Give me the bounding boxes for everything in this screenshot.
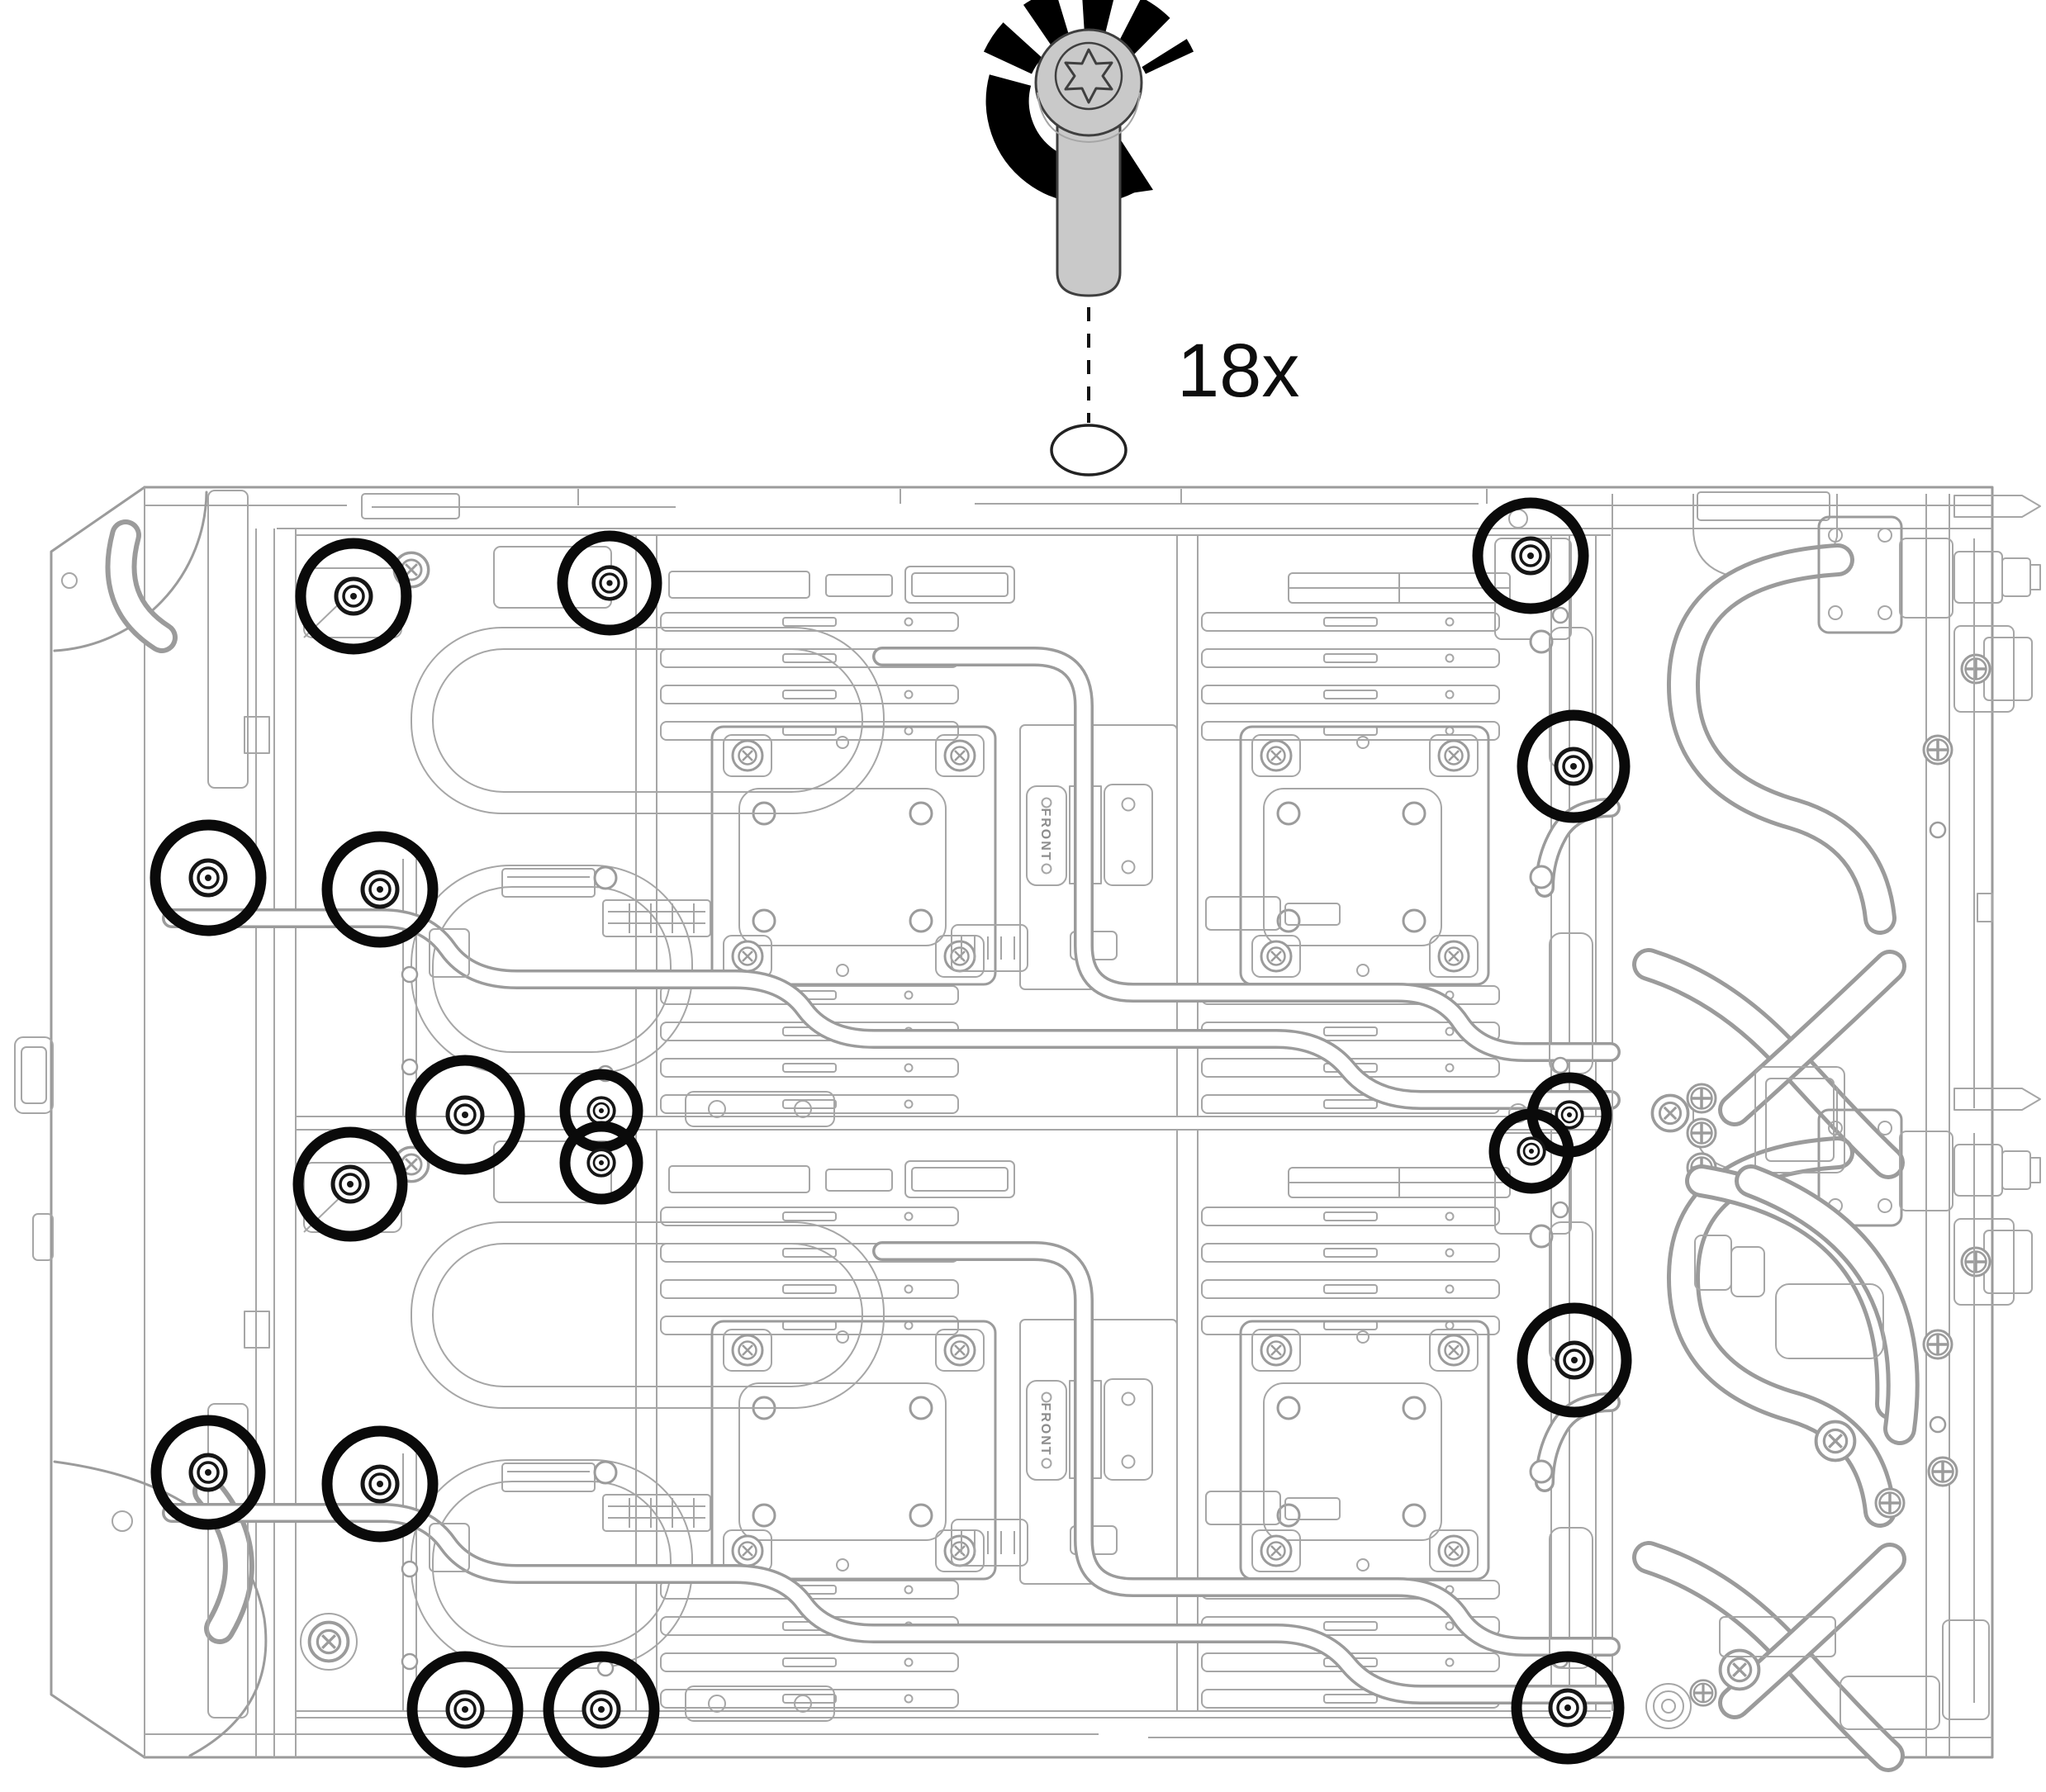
front-label-top: FRONT bbox=[1038, 808, 1052, 861]
screw-head-icon bbox=[333, 1167, 368, 1202]
screw-head-icon bbox=[584, 1692, 619, 1727]
torx-screw-rotation-icon bbox=[1008, 11, 1170, 475]
screw-head-icon bbox=[1556, 749, 1591, 784]
diagram-canvas: FRONT FRONT 18x bbox=[0, 0, 2046, 1792]
screw-head-icon bbox=[588, 1150, 615, 1176]
hose-top bbox=[1649, 494, 2040, 1163]
screw-count-label: 18x bbox=[1177, 329, 1299, 413]
screw-head-icon bbox=[1557, 1343, 1592, 1377]
screw-hole-ellipse bbox=[1051, 425, 1126, 475]
front-label-bottom: FRONT bbox=[1038, 1402, 1052, 1456]
screw-head-icon bbox=[594, 567, 626, 600]
left-latch-handles bbox=[55, 491, 357, 1756]
screw-head-icon bbox=[588, 1097, 615, 1124]
screw-head-icon bbox=[363, 872, 397, 907]
screw-head-icon bbox=[363, 1467, 397, 1501]
node-board-bottom bbox=[172, 1088, 1612, 1721]
screw-head-icon bbox=[1550, 1690, 1585, 1725]
screw-shaft bbox=[1057, 124, 1120, 296]
node-board-top bbox=[172, 494, 1612, 1126]
front-labels: FRONT FRONT bbox=[1038, 808, 1052, 1456]
screw-head-icon bbox=[1513, 538, 1548, 573]
screw-head-icon bbox=[191, 860, 225, 895]
screw-head-icon bbox=[448, 1097, 482, 1132]
screw-head-icon bbox=[1518, 1138, 1545, 1164]
screw-head-icon bbox=[448, 1692, 482, 1727]
screw-head-icon bbox=[336, 579, 371, 614]
screw-head-icon bbox=[191, 1455, 225, 1490]
screw-location-circles bbox=[155, 503, 1626, 1762]
